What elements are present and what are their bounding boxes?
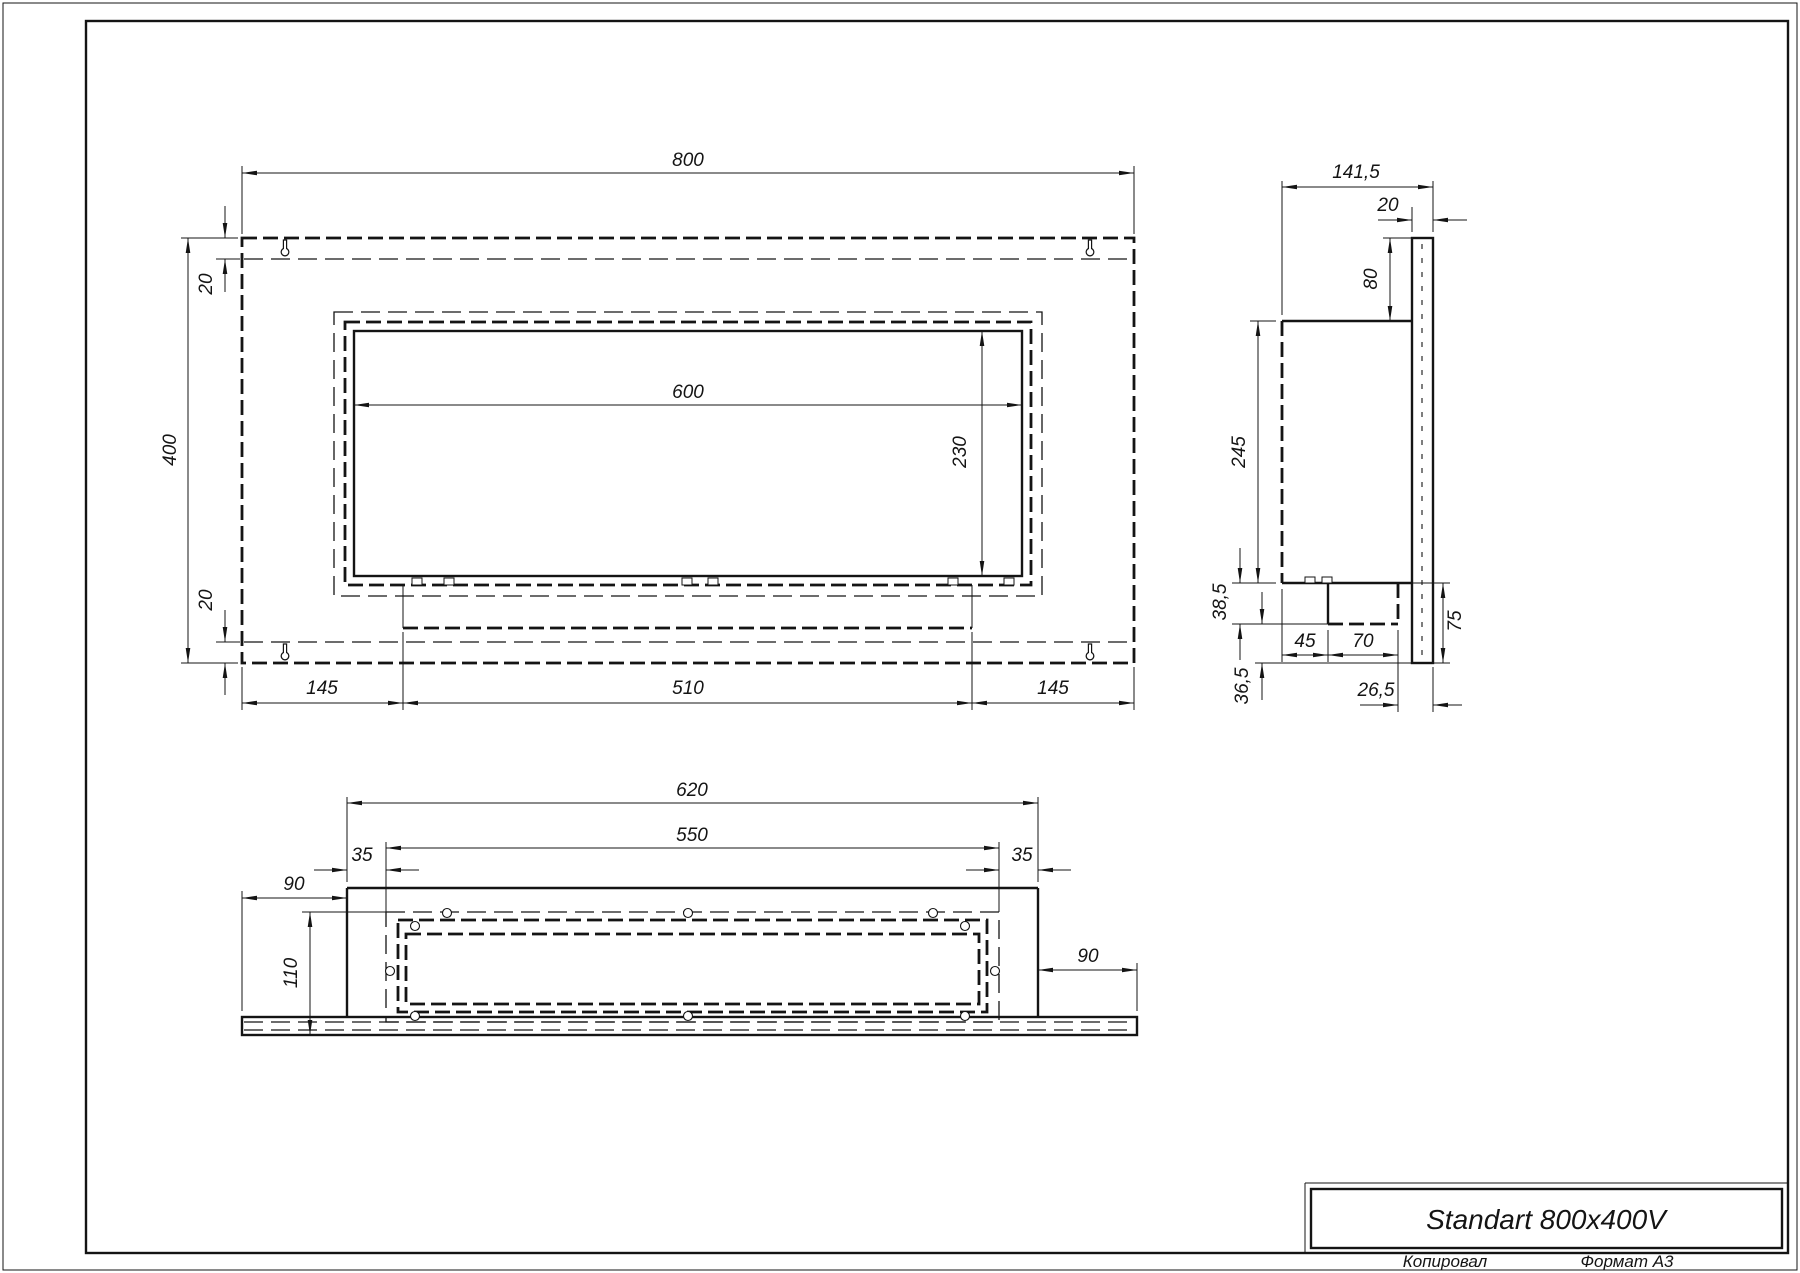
drawing-canvas: 800 400 20 20 600 230 145 510 145 xyxy=(0,0,1800,1273)
dim-bottom-cavity-width: 550 xyxy=(676,825,708,846)
dim-bottom-right-flange: 90 xyxy=(1077,946,1099,967)
title-block: Standart 800x400V Копировал Формат А3 xyxy=(1305,1183,1788,1271)
dim-front-top-inset: 20 xyxy=(196,273,217,296)
dim-bottom-left-inset: 35 xyxy=(351,845,373,866)
front-view: 800 400 20 20 600 230 145 510 145 xyxy=(160,150,1134,710)
dim-bottom-cavity-depth: 110 xyxy=(281,957,302,988)
dim-bottom-box-width: 620 xyxy=(676,780,708,801)
page-frame xyxy=(3,3,1797,1270)
dim-side-panel-thickness: 20 xyxy=(1376,195,1399,216)
dim-front-overall-width: 800 xyxy=(672,150,704,171)
dim-side-back-gap: 26,5 xyxy=(1357,680,1395,701)
dim-front-bottom-inset: 20 xyxy=(196,589,217,612)
dim-side-top-offset: 80 xyxy=(1361,268,1382,290)
dim-side-lower-panel: 75 xyxy=(1445,610,1466,632)
dim-side-overall-depth: 141,5 xyxy=(1332,162,1380,183)
dim-bottom-left-flange: 90 xyxy=(283,874,305,895)
product-title: Standart 800x400V xyxy=(1426,1204,1668,1235)
keyhole-slot-icon xyxy=(281,240,289,256)
dim-front-right-margin: 145 xyxy=(1037,678,1069,699)
dim-front-opening-width: 600 xyxy=(672,382,704,403)
dim-side-bottom-offset: 36,5 xyxy=(1232,667,1253,704)
dim-front-overall-height: 400 xyxy=(160,434,181,466)
dim-side-burner-depth: 70 xyxy=(1352,631,1374,652)
bottom-view: 620 550 35 35 90 110 90 xyxy=(242,780,1137,1035)
dim-side-body-height: 245 xyxy=(1229,436,1250,469)
drawing-sheet: 800 400 20 20 600 230 145 510 145 xyxy=(0,0,1800,1273)
format-label: Формат А3 xyxy=(1580,1252,1674,1271)
dim-side-burner-offset: 45 xyxy=(1294,631,1316,652)
keyhole-slot-icon xyxy=(1086,240,1094,256)
dim-front-tray-width: 510 xyxy=(672,678,704,699)
keyhole-slot-icon xyxy=(1086,644,1094,660)
dim-front-left-margin: 145 xyxy=(306,678,338,699)
dim-side-burner-drop: 38,5 xyxy=(1210,583,1231,620)
keyhole-slot-icon xyxy=(281,644,289,660)
copied-label: Копировал xyxy=(1403,1252,1488,1271)
side-view: 141,5 20 80 245 38,5 45 70 26,5 xyxy=(1210,162,1467,712)
dim-front-opening-height: 230 xyxy=(950,436,971,469)
dim-bottom-right-inset: 35 xyxy=(1011,845,1033,866)
